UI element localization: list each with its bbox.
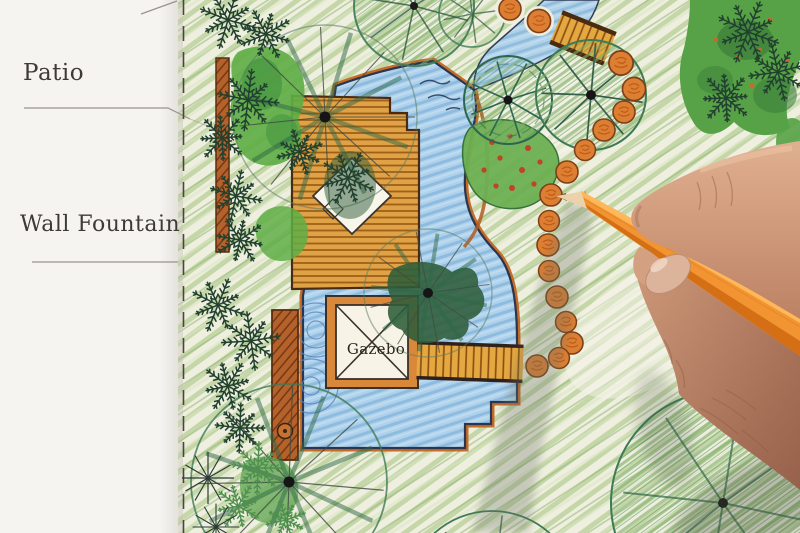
wall-fountain-label: Wall Fountain — [20, 214, 180, 236]
patio-label: Patio — [23, 62, 84, 85]
photo-of-landscape-plan: Patio Wall Fountain Gazebo — [0, 0, 800, 533]
stone-pointed-at — [540, 184, 562, 206]
boardwalk — [416, 341, 523, 383]
gazebo-label: Gazebo — [341, 342, 411, 357]
garden-plan-drawing — [0, 0, 800, 533]
